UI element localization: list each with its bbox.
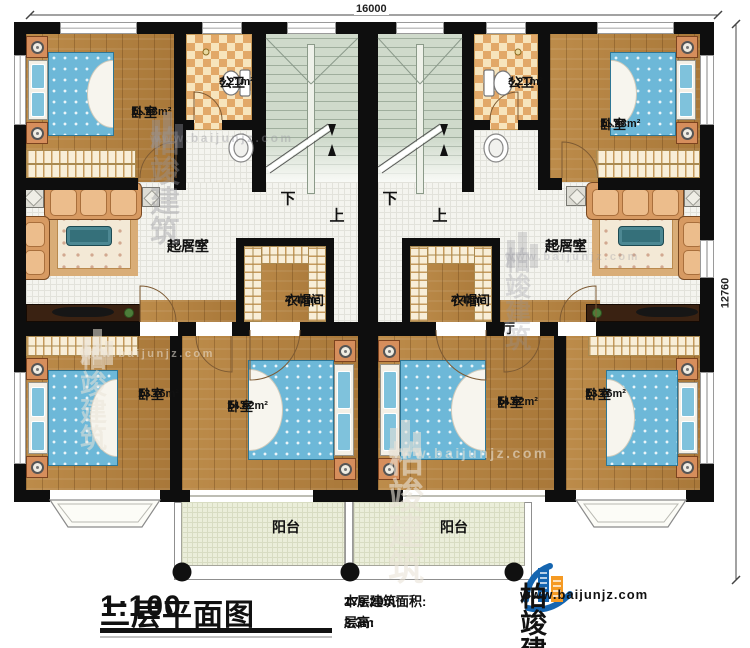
brand-website: www.baijunjz.com bbox=[520, 587, 648, 602]
dimension-top: 16000 bbox=[354, 3, 389, 15]
floor-area-value: 179.29m² bbox=[344, 592, 400, 613]
floor-height-value: 3.3m bbox=[344, 613, 374, 634]
title-block: 二层平面图1:100 本层建筑面积: 179.29m² 层高: 3.3m bbox=[0, 584, 750, 648]
title-underline-2 bbox=[100, 636, 332, 638]
stair-up-label: 上 bbox=[432, 205, 447, 226]
title-underline bbox=[100, 628, 332, 633]
stair-up-label: 上 bbox=[329, 205, 344, 226]
stair-down-label: 下 bbox=[280, 188, 295, 209]
dimension-right: 12760 bbox=[719, 276, 731, 311]
floor-plan: 16000 12760 卧室11.93m² 卧室11.93m² 公卫3.21m²… bbox=[0, 0, 750, 648]
linework-overlay bbox=[0, 0, 750, 648]
stair-down-label: 下 bbox=[382, 188, 397, 209]
